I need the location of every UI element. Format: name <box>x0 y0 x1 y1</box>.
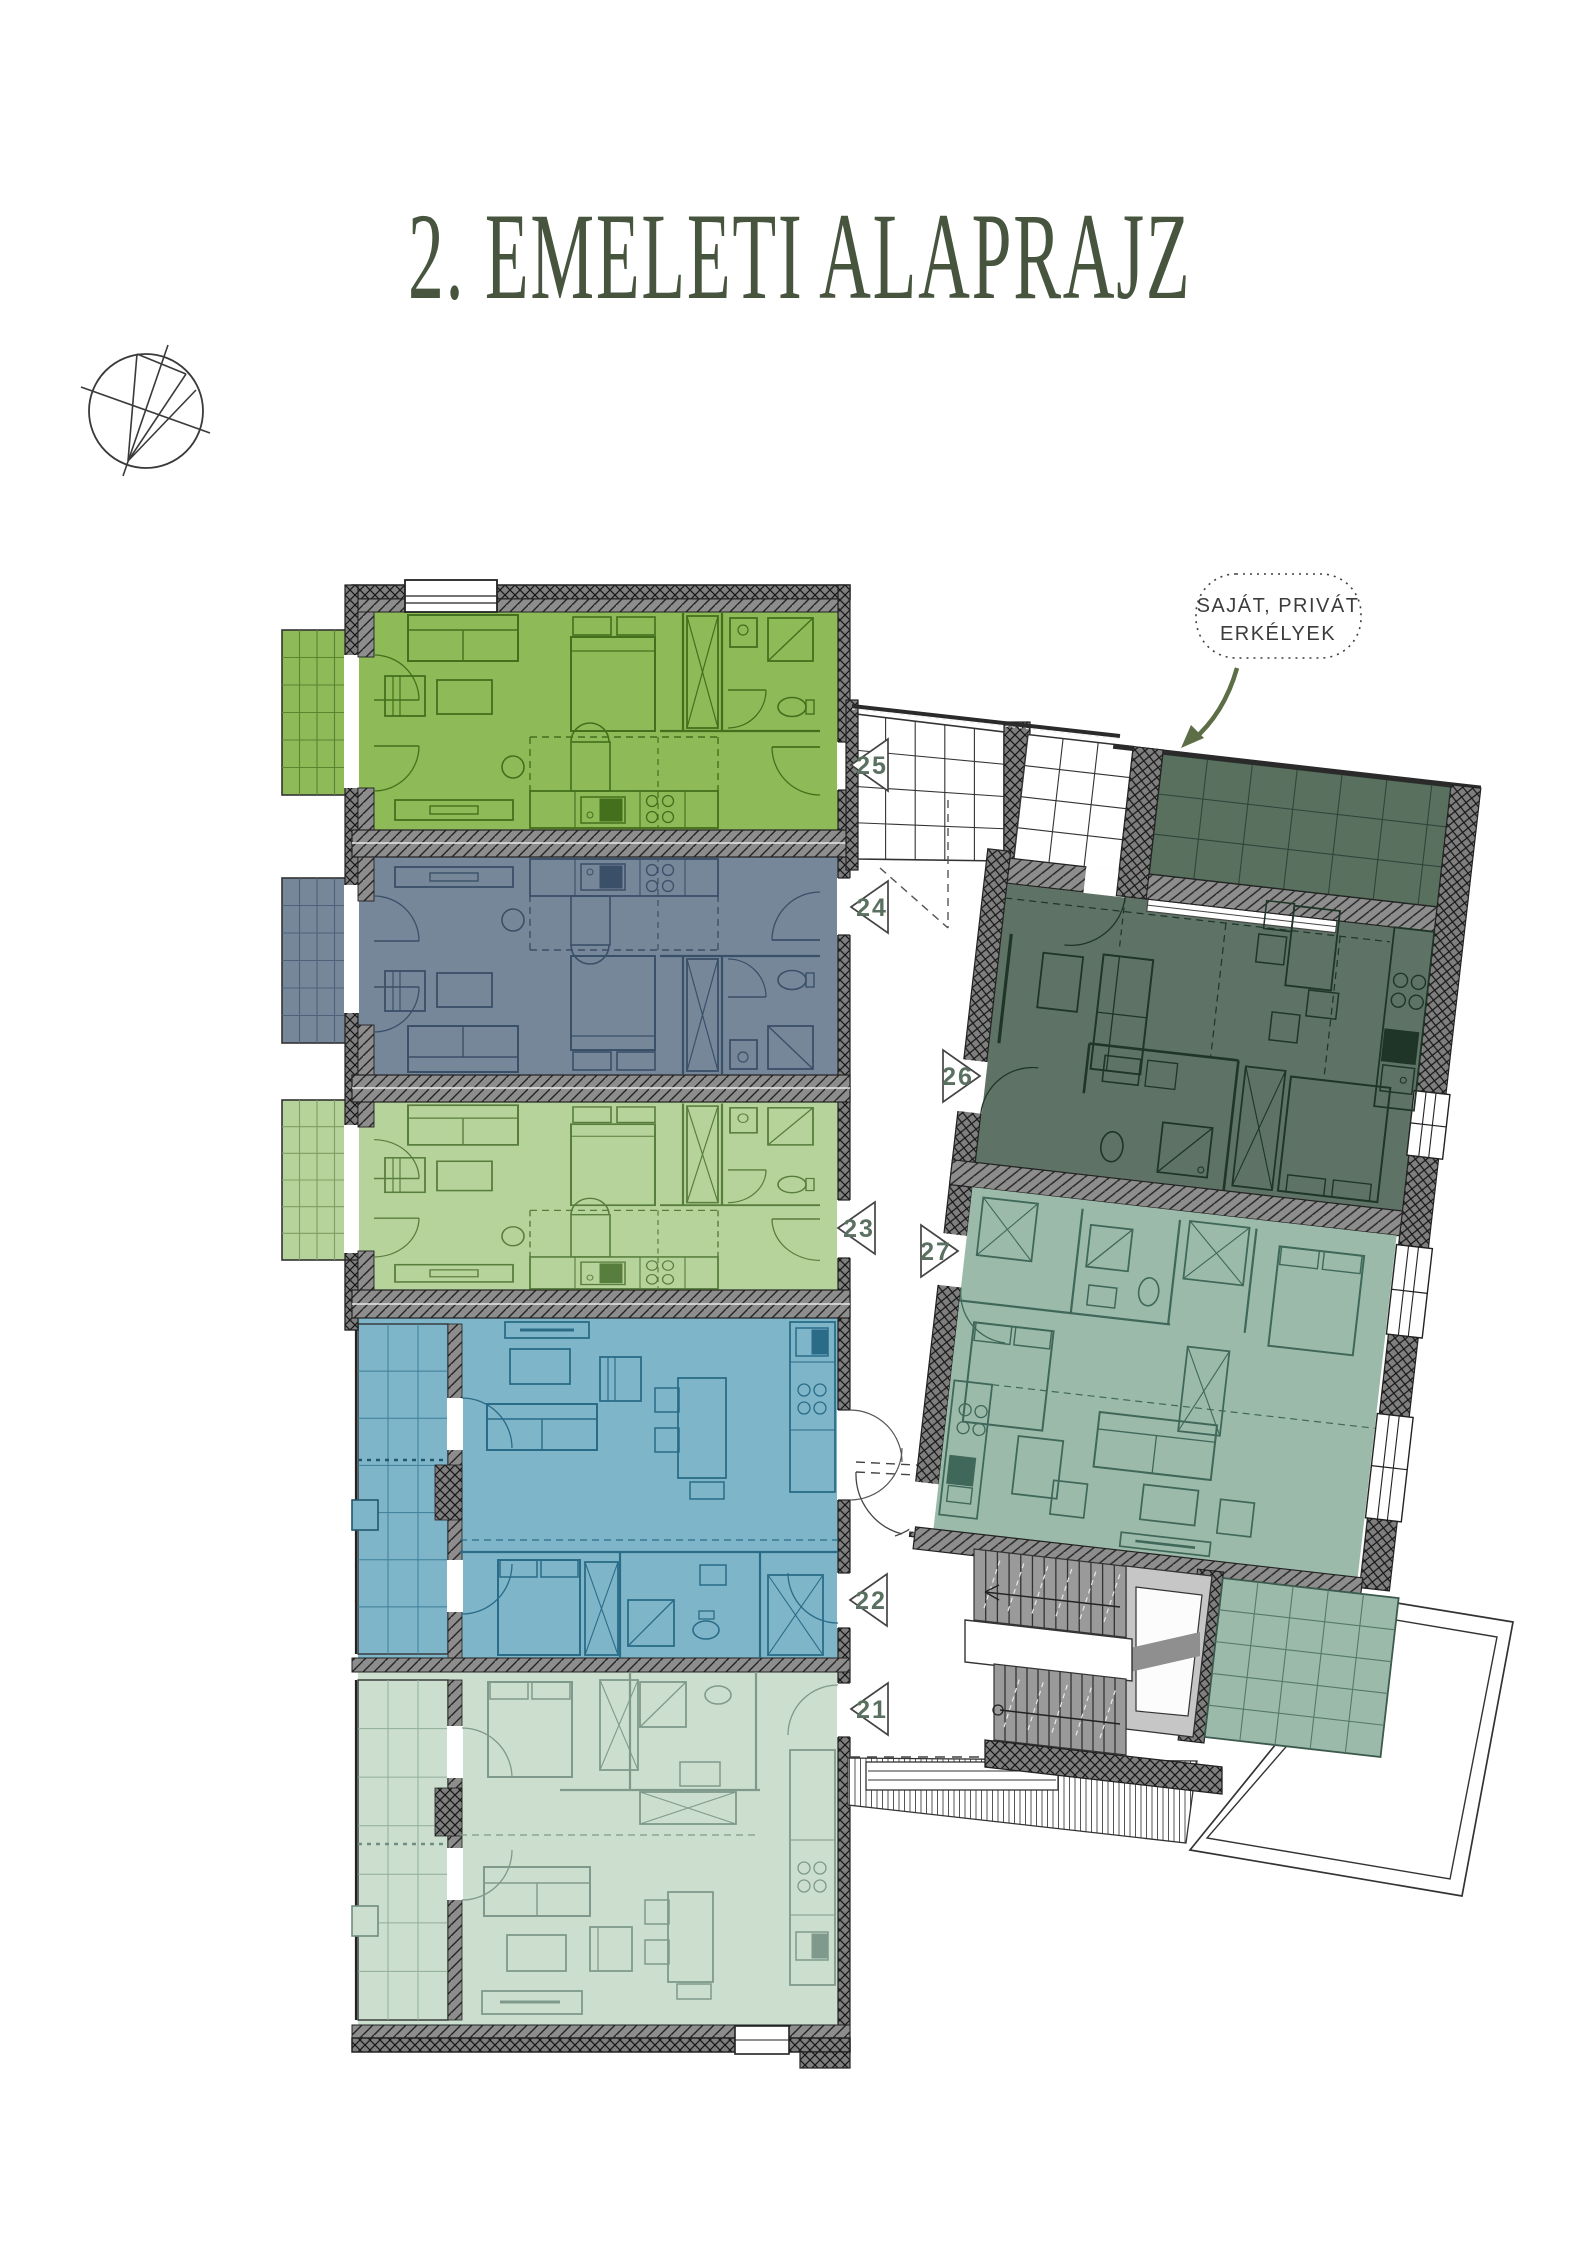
svg-text:SAJÁT, PRIVÁT: SAJÁT, PRIVÁT <box>1197 594 1360 617</box>
svg-text:26: 26 <box>942 1063 974 1091</box>
svg-text:22: 22 <box>855 1587 887 1615</box>
svg-text:27: 27 <box>920 1238 952 1266</box>
svg-text:23: 23 <box>843 1215 875 1243</box>
svg-text:ERKÉLYEK: ERKÉLYEK <box>1220 622 1336 645</box>
svg-text:25: 25 <box>856 752 888 780</box>
svg-text:21: 21 <box>856 1696 888 1724</box>
svg-text:2. EMELETI ALAPRAJZ: 2. EMELETI ALAPRAJZ <box>408 188 1191 325</box>
svg-text:24: 24 <box>856 894 888 922</box>
